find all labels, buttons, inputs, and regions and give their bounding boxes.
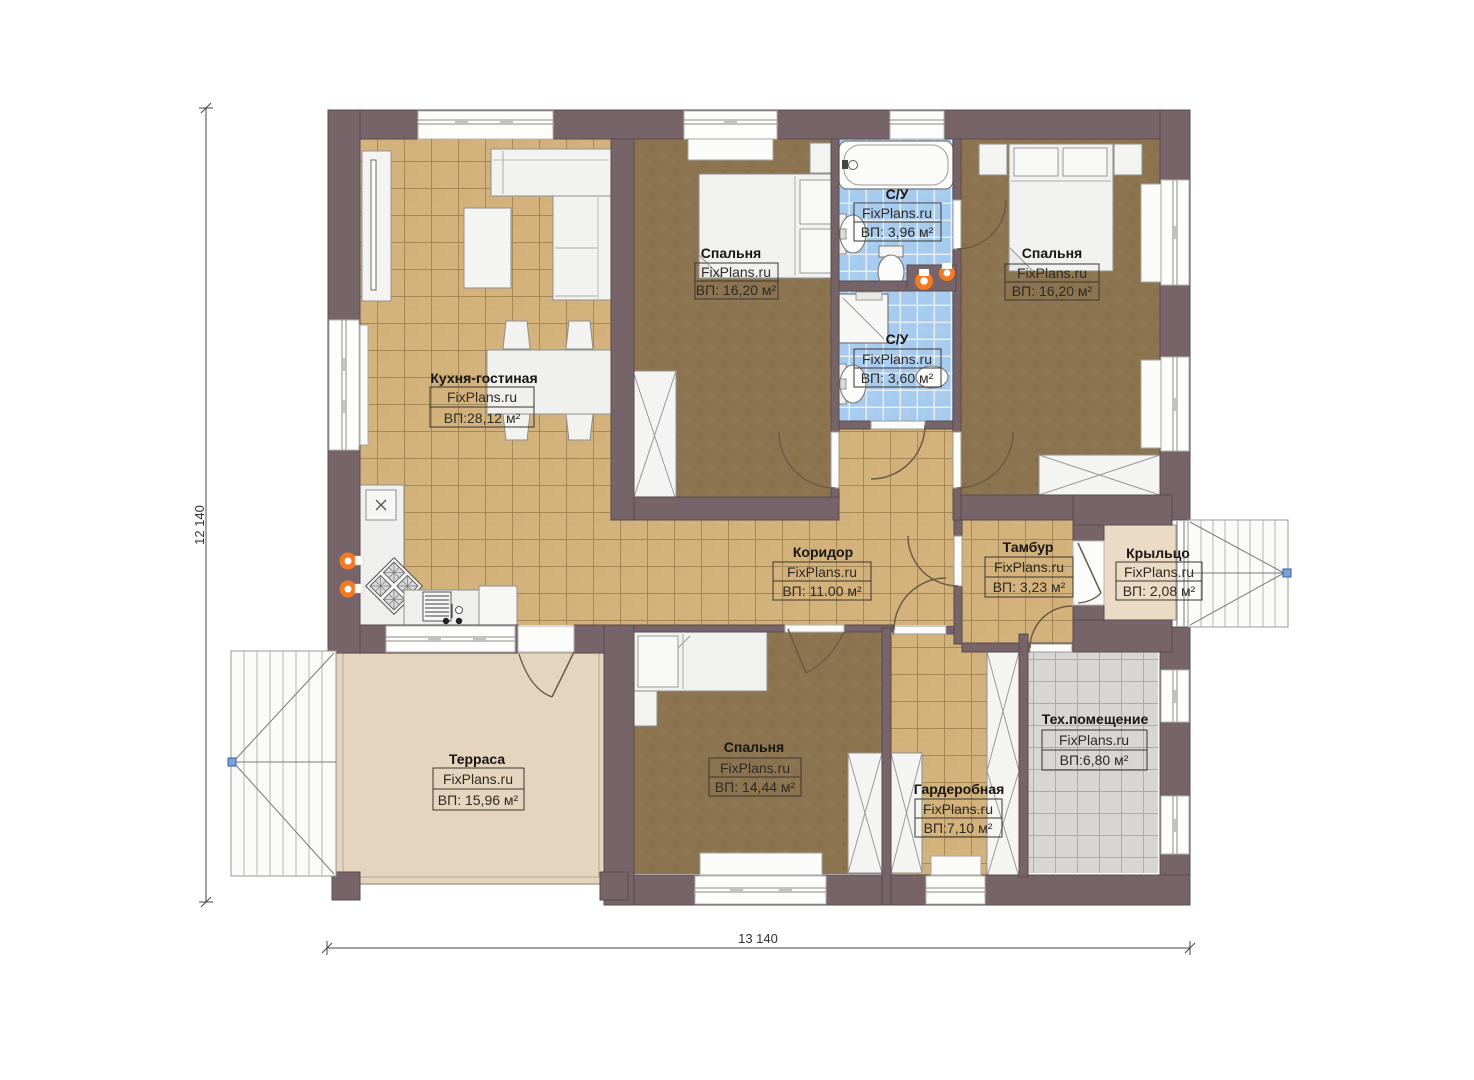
svg-text:FixPlans.ru: FixPlans.ru: [447, 389, 517, 405]
svg-text:FixPlans.ru: FixPlans.ru: [787, 564, 857, 580]
svg-text:FixPlans.ru: FixPlans.ru: [994, 559, 1064, 575]
svg-text:ВП: 16,20 м²: ВП: 16,20 м²: [696, 282, 777, 298]
svg-text:FixPlans.ru: FixPlans.ru: [862, 351, 932, 367]
svg-text:ВП: 15,96 м²: ВП: 15,96 м²: [438, 792, 519, 808]
svg-text:12 140: 12 140: [192, 505, 207, 545]
svg-text:Гардеробная: Гардеробная: [914, 781, 1005, 797]
svg-text:Терраса: Терраса: [449, 751, 505, 767]
svg-text:FixPlans.ru: FixPlans.ru: [720, 760, 790, 776]
svg-text:FixPlans.ru: FixPlans.ru: [701, 264, 771, 280]
svg-text:Крыльцо: Крыльцо: [1126, 545, 1190, 561]
svg-text:Спальня: Спальня: [1022, 245, 1082, 261]
svg-text:ВП: 3,60 м²: ВП: 3,60 м²: [861, 370, 934, 386]
svg-text:FixPlans.ru: FixPlans.ru: [1059, 732, 1129, 748]
svg-text:FixPlans.ru: FixPlans.ru: [1017, 265, 1087, 281]
svg-text:ВП:6,80 м²: ВП:6,80 м²: [1060, 752, 1129, 768]
svg-text:Спальня: Спальня: [724, 739, 784, 755]
svg-text:FixPlans.ru: FixPlans.ru: [443, 771, 513, 787]
svg-text:FixPlans.ru: FixPlans.ru: [923, 801, 993, 817]
svg-text:13 140: 13 140: [738, 931, 778, 946]
svg-text:ВП:7,10 м²: ВП:7,10 м²: [924, 820, 993, 836]
svg-text:FixPlans.ru: FixPlans.ru: [1124, 564, 1194, 580]
svg-text:Коридор: Коридор: [793, 544, 853, 560]
svg-text:ВП: 2,08 м²: ВП: 2,08 м²: [1123, 583, 1196, 599]
svg-text:Кухня-гостиная: Кухня-гостиная: [430, 370, 537, 386]
svg-text:ВП: 3,23 м²: ВП: 3,23 м²: [993, 579, 1066, 595]
svg-text:Тех.помещение: Тех.помещение: [1042, 711, 1149, 727]
svg-text:ВП: 14,44 м²: ВП: 14,44 м²: [715, 779, 796, 795]
svg-text:ВП: 16,20 м²: ВП: 16,20 м²: [1012, 283, 1093, 299]
svg-text:С/У: С/У: [886, 331, 909, 347]
svg-text:Спальня: Спальня: [701, 245, 761, 261]
svg-text:Тамбур: Тамбур: [1003, 539, 1054, 555]
svg-text:ВП: 11.00 м²: ВП: 11.00 м²: [782, 583, 862, 599]
svg-text:ВП: 3,96 м²: ВП: 3,96 м²: [861, 224, 934, 240]
svg-text:С/У: С/У: [886, 186, 909, 202]
svg-text:ВП:28,12 м²: ВП:28,12 м²: [444, 410, 521, 426]
svg-text:FixPlans.ru: FixPlans.ru: [862, 205, 932, 221]
